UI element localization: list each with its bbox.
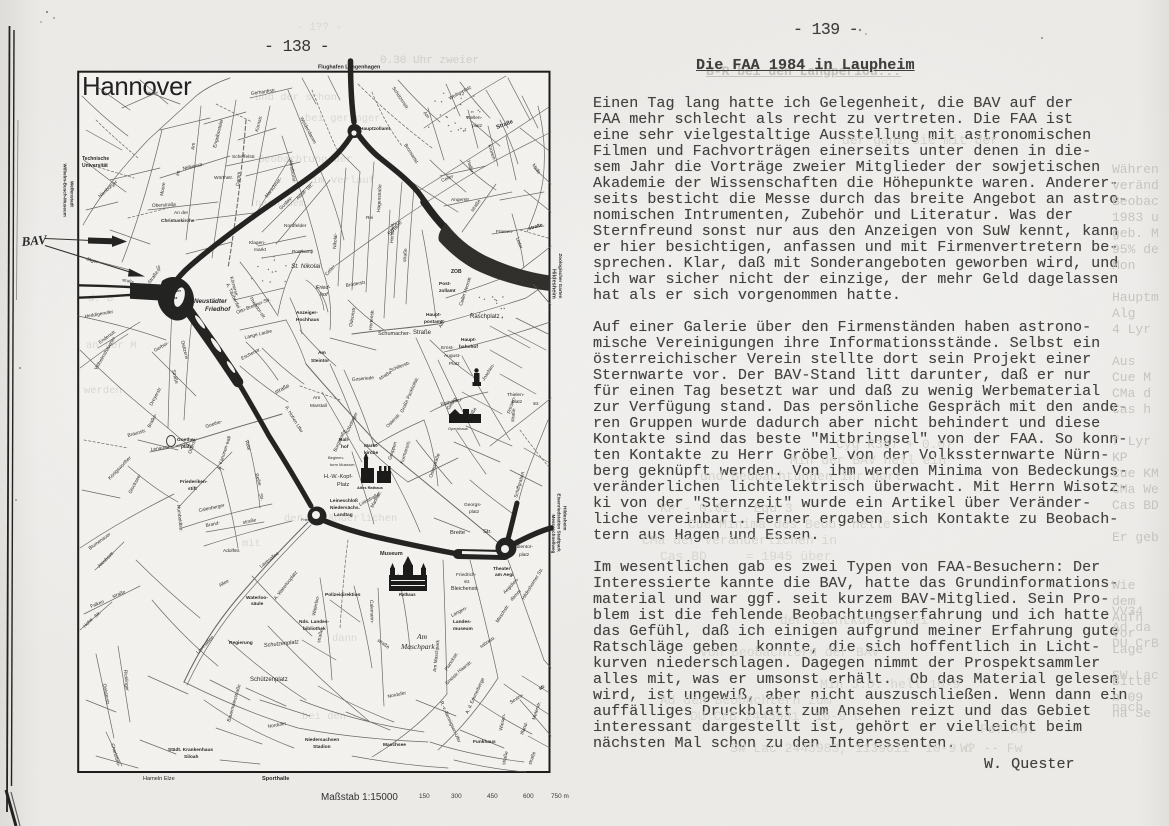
- svg-text:Platz: Platz: [449, 361, 460, 367]
- svg-text:swecher: swecher: [165, 288, 181, 293]
- svg-text:Niedersächs.: Niedersächs.: [330, 505, 360, 511]
- svg-text:str.: str.: [464, 579, 470, 585]
- svg-text:Messeschnellweg: Messeschnellweg: [551, 515, 556, 554]
- svg-text:Nordfelder: Nordfelder: [284, 223, 307, 229]
- svg-text:Ernst-: Ernst-: [441, 345, 454, 351]
- svg-text:Leineschloß: Leineschloß: [330, 498, 358, 504]
- svg-text:im Verlauf: im Verlauf: [312, 175, 375, 187]
- svg-text:Rathaus: Rathaus: [399, 592, 416, 597]
- svg-text:straße: straße: [402, 248, 409, 262]
- svg-text:Welfenstadt: Welfenstadt: [70, 181, 75, 207]
- svg-text:markt: markt: [254, 247, 267, 253]
- svg-text:600: 600: [523, 793, 534, 800]
- svg-text:Adolfstr.: Adolfstr.: [223, 548, 240, 554]
- svg-text:hof: hof: [320, 292, 328, 298]
- svg-text:platz: platz: [519, 552, 530, 558]
- svg-text:Postkamp: Postkamp: [292, 249, 314, 255]
- svg-text:kirche: kirche: [364, 450, 378, 456]
- svg-text:Maschpark: Maschpark: [400, 642, 435, 651]
- svg-text:Polizeidirektion: Polizeidirektion: [325, 592, 361, 598]
- svg-text:werden: werden: [84, 385, 122, 397]
- svg-text:platz: platz: [469, 509, 480, 515]
- svg-text:Anzeiger-: Anzeiger-: [296, 310, 318, 316]
- svg-text:platz: platz: [181, 444, 193, 450]
- svg-text:Breite: Breite: [450, 530, 465, 536]
- svg-text:Schumacher-: Schumacher-: [378, 331, 411, 337]
- svg-text:Friederikenpl.: Friederikenpl.: [301, 517, 325, 522]
- svg-text:säule: säule: [251, 601, 264, 607]
- svg-text:Maßstab 1:15000: Maßstab 1:15000: [321, 792, 398, 803]
- svg-text:Eisenriedstation Stadtpark: Eisenriedstation Stadtpark: [557, 494, 562, 553]
- svg-text:Technische: Technische: [82, 156, 109, 162]
- svg-text:Opernhaus: Opernhaus: [448, 426, 468, 431]
- svg-text:Hochhaus: Hochhaus: [296, 317, 320, 323]
- svg-text:Fried-: Fried-: [316, 285, 331, 291]
- svg-text:August-: August-: [444, 353, 461, 359]
- svg-text:Universität: Universität: [82, 163, 108, 169]
- svg-text:str.: str.: [533, 401, 539, 407]
- svg-text:Friesen-: Friesen-: [496, 229, 514, 235]
- svg-text:Funkhaus: Funkhaus: [473, 739, 496, 745]
- svg-text:Goethe-: Goethe-: [177, 437, 196, 443]
- svg-text:0.30 Uhr zweier: 0.30 Uhr zweier: [380, 55, 479, 67]
- svg-text:Nikolai-: Nikolai-: [332, 232, 339, 249]
- svg-text:Landtag: Landtag: [334, 512, 353, 518]
- svg-text:Am: Am: [190, 142, 197, 150]
- svg-text:An der: An der: [174, 210, 189, 216]
- svg-text:Calemann-: Calemann-: [368, 600, 375, 624]
- svg-text:H.-W.-Kopf-: H.-W.-Kopf-: [324, 474, 353, 480]
- svg-text:St. Nikolai: St. Nikolai: [291, 263, 321, 270]
- svg-text:Friederiken-: Friederiken-: [180, 479, 208, 485]
- svg-text:Städt. Krankenhaus: Städt. Krankenhaus: [168, 747, 213, 753]
- svg-text:bibliothek: bibliothek: [303, 626, 326, 632]
- svg-text:Niedersachsen: Niedersachsen: [305, 737, 339, 743]
- svg-text:- 1?? -: - 1?? -: [296, 22, 342, 34]
- svg-text:Nds. Landes-: Nds. Landes-: [299, 619, 330, 625]
- svg-text:Hildesheim: Hildesheim: [551, 269, 557, 299]
- svg-text:Markt-: Markt-: [364, 443, 379, 449]
- svg-text:Wilhelm-Busch-Museum: Wilhelm-Busch-Museum: [63, 164, 68, 217]
- svg-text:Rei: Rei: [366, 215, 373, 221]
- svg-text:Post-: Post-: [439, 281, 451, 287]
- svg-text:Str.: Str.: [483, 529, 492, 535]
- svg-text:turm Museum: turm Museum: [330, 462, 355, 467]
- svg-text:museum: museum: [453, 627, 473, 632]
- svg-text:450: 450: [487, 793, 498, 800]
- svg-text:Theater: Theater: [493, 566, 510, 572]
- svg-text:Beginen-: Beginen-: [328, 455, 345, 460]
- svg-text:- 138 -: - 138 -: [264, 37, 329, 56]
- svg-text:Siloah: Siloah: [184, 754, 198, 760]
- svg-text:Platz: Platz: [168, 295, 177, 300]
- svg-text:Hannover: Hannover: [82, 73, 192, 101]
- svg-text:bahnhof: bahnhof: [459, 344, 478, 350]
- svg-text:Angerstr.: Angerstr.: [451, 197, 470, 203]
- svg-text:mit: mit: [242, 538, 261, 550]
- svg-text:Regierung: Regierung: [229, 640, 253, 646]
- svg-text:Im: Im: [175, 170, 182, 176]
- svg-text:Thielen-: Thielen-: [507, 392, 525, 398]
- svg-text:Am: Am: [318, 350, 326, 356]
- svg-text:d. B: d. B: [88, 293, 113, 305]
- svg-text:Waterloo-: Waterloo-: [246, 595, 268, 601]
- svg-text:Steintor: Steintor: [311, 358, 329, 364]
- svg-text:bei geringer: bei geringer: [305, 113, 381, 125]
- svg-text:Stadion: Stadion: [313, 744, 331, 750]
- svg-text:Wellen-: Wellen-: [466, 115, 483, 121]
- svg-text:Hildesheim: Hildesheim: [563, 506, 568, 531]
- svg-text:gidientor-: gidientor-: [513, 544, 533, 550]
- svg-text:Schützenplatz: Schützenplatz: [250, 677, 288, 683]
- svg-text:300: 300: [451, 793, 462, 800]
- svg-text:Bleichenstr.: Bleichenstr.: [451, 586, 479, 592]
- svg-text:Georgs-: Georgs-: [464, 502, 482, 508]
- svg-text:Friedhof: Friedhof: [205, 306, 231, 313]
- svg-text:dann: dann: [332, 633, 357, 645]
- svg-text:Zoologischer Garten: Zoologischer Garten: [558, 254, 563, 299]
- svg-text:Straße: Straße: [413, 330, 432, 336]
- svg-text:stift: stift: [188, 486, 197, 492]
- svg-text:bei den: bei den: [302, 711, 346, 723]
- svg-text:Christuskirche: Christuskirche: [161, 218, 195, 224]
- svg-text:150: 150: [419, 793, 430, 800]
- svg-text:Am: Am: [313, 395, 320, 401]
- svg-text:Scheffelstr.: Scheffelstr.: [232, 154, 256, 160]
- svg-text:Marstall: Marstall: [310, 403, 327, 409]
- svg-text:platz: platz: [472, 123, 483, 129]
- svg-text:ZOB: ZOB: [451, 269, 462, 275]
- svg-text:Haupt-: Haupt-: [426, 312, 442, 318]
- svg-text:BAV: BAV: [20, 232, 49, 249]
- svg-text:Haupt-: Haupt-: [461, 337, 477, 343]
- svg-text:Raschplatz: Raschplatz: [470, 314, 500, 320]
- svg-text:Friedrich-: Friedrich-: [456, 572, 477, 578]
- svg-text:Hauptzollamt: Hauptzollamt: [360, 126, 391, 132]
- svg-text:Landes-: Landes-: [453, 619, 472, 625]
- svg-text:750 m: 750 m: [551, 793, 569, 800]
- svg-text:Museum: Museum: [380, 551, 403, 557]
- svg-text:am Aegi: am Aegi: [495, 572, 513, 578]
- svg-text:Wörthstr.: Wörthstr.: [214, 175, 233, 181]
- svg-text:Maschsee: Maschsee: [383, 742, 406, 748]
- svg-text:Altes Rathaus: Altes Rathaus: [357, 485, 383, 490]
- svg-text:Platz: Platz: [337, 482, 349, 488]
- svg-text:zollamt: zollamt: [439, 288, 456, 294]
- svg-text:hof: hof: [341, 444, 349, 450]
- svg-text:Neustädter: Neustädter: [194, 298, 227, 305]
- svg-text:Hameln Elze: Hameln Elze: [143, 776, 175, 782]
- svg-text:Sporthalle: Sporthalle: [262, 776, 289, 782]
- svg-text:Am: Am: [416, 632, 428, 641]
- svg-text:Klagen-: Klagen-: [249, 240, 266, 246]
